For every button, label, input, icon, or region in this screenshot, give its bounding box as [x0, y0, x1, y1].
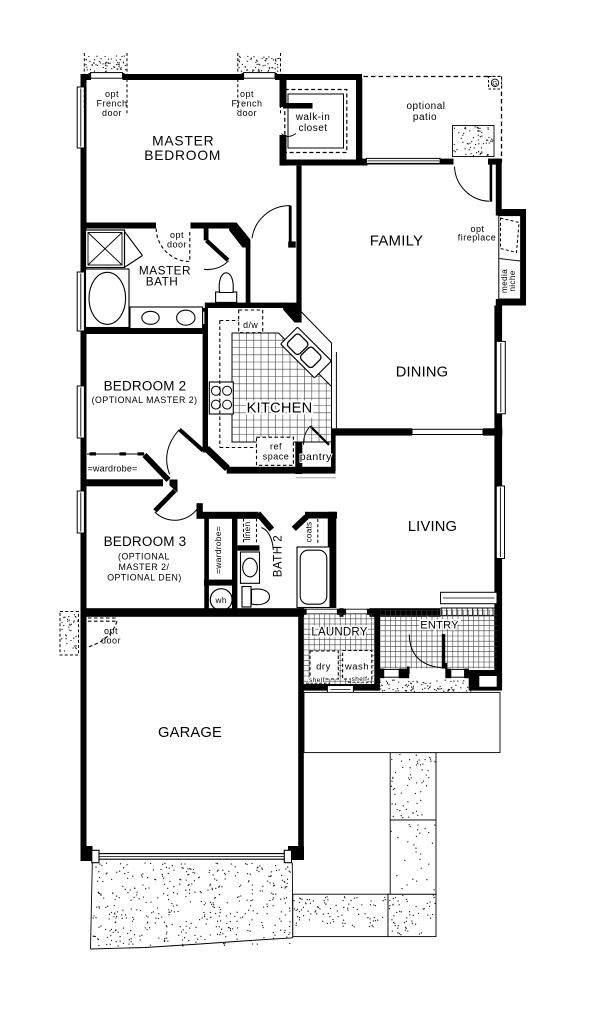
svg-text:MASTER 2/: MASTER 2/ — [119, 562, 170, 572]
svg-text:ENTRY: ENTRY — [420, 620, 459, 632]
svg-text:optional: optional — [406, 101, 445, 112]
svg-text:niche: niche — [507, 270, 517, 291]
svg-text:door: door — [101, 636, 121, 646]
svg-text:door: door — [102, 108, 122, 118]
svg-text:BEDROOM 3: BEDROOM 3 — [104, 534, 187, 549]
svg-text:wh: wh — [214, 596, 226, 605]
svg-text:coats: coats — [304, 522, 314, 543]
svg-text:opt: opt — [104, 626, 118, 636]
svg-text:G: G — [492, 80, 498, 87]
svg-text:door: door — [237, 108, 257, 118]
svg-text:=wardrobe=: =wardrobe= — [87, 463, 137, 473]
svg-text:=wardrobe=: =wardrobe= — [213, 526, 223, 574]
svg-text:FAMILY: FAMILY — [370, 232, 423, 249]
svg-text:French: French — [231, 99, 262, 109]
svg-text:walk-in: walk-in — [295, 112, 331, 123]
svg-text:French: French — [96, 99, 127, 109]
svg-text:opt: opt — [170, 230, 184, 240]
svg-text:BATH: BATH — [146, 275, 179, 289]
svg-text:door: door — [167, 240, 187, 250]
svg-text:ref: ref — [270, 442, 282, 452]
svg-text:DINING: DINING — [396, 365, 449, 381]
svg-text:opt: opt — [240, 89, 254, 99]
svg-text:(OPTIONAL: (OPTIONAL — [118, 551, 170, 561]
svg-text:OPTIONAL DEN): OPTIONAL DEN) — [107, 572, 182, 582]
svg-text:linen: linen — [242, 522, 252, 541]
svg-text:fireplace: fireplace — [458, 233, 497, 243]
svg-text:pantry: pantry — [300, 451, 332, 463]
svg-text:MASTER: MASTER — [152, 133, 214, 148]
svg-text:GARAGE: GARAGE — [158, 725, 222, 741]
svg-text:dry: dry — [316, 662, 331, 673]
svg-text:patio: patio — [413, 112, 437, 123]
svg-text:opt: opt — [105, 89, 119, 99]
svg-text:LIVING: LIVING — [408, 519, 457, 535]
svg-text:BATH 2: BATH 2 — [273, 535, 285, 577]
svg-text:wash: wash — [344, 662, 369, 673]
svg-text:closet: closet — [298, 123, 327, 134]
svg-text:BEDROOM: BEDROOM — [144, 148, 221, 163]
svg-text:LAUNDRY: LAUNDRY — [311, 627, 367, 639]
svg-text:(OPTIONAL MASTER 2): (OPTIONAL MASTER 2) — [92, 395, 198, 405]
svg-text:KITCHEN: KITCHEN — [247, 400, 313, 416]
svg-text:BEDROOM 2: BEDROOM 2 — [104, 378, 187, 393]
svg-text:space: space — [263, 452, 290, 462]
svg-text:d/w: d/w — [243, 320, 258, 330]
